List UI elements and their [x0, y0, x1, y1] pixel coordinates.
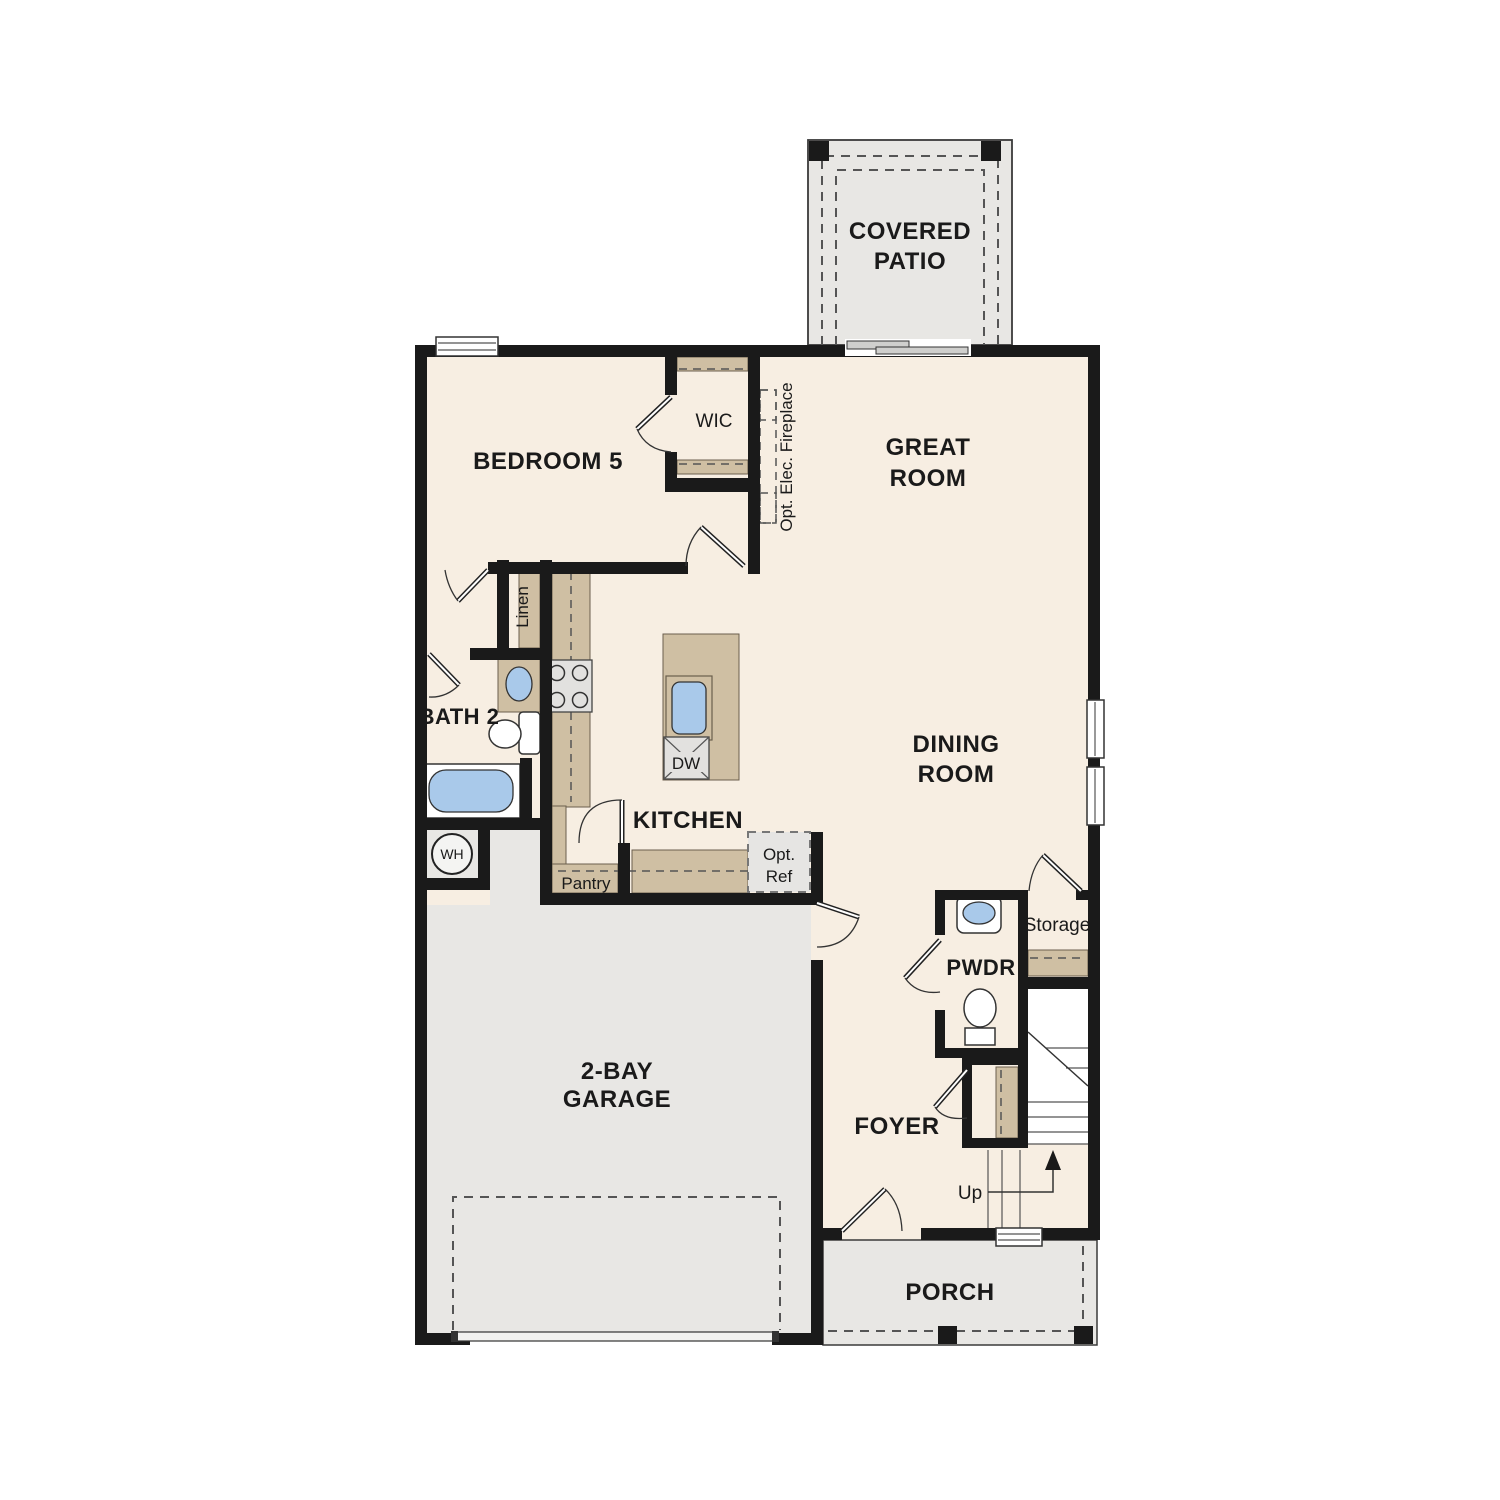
covered-patio-label-line2: PATIO	[874, 248, 946, 275]
patio-sliding-door	[845, 339, 971, 356]
kitchen-label: KITCHEN	[633, 807, 743, 834]
coat-closet-shelf	[996, 1067, 1018, 1138]
floor-plan-drawing: COVERED PATIO Up WIC Linen	[0, 0, 1500, 1500]
water-heater: WH	[432, 834, 472, 874]
island-sink	[672, 682, 706, 734]
floor-plan-page: COVERED PATIO Up WIC Linen	[0, 0, 1500, 1500]
bath2-toilet-tank	[519, 712, 540, 754]
garage-floor	[427, 905, 811, 1333]
storage-shelf	[1028, 950, 1088, 976]
dishwasher-label: DW	[672, 754, 700, 773]
garage-floor-strip	[490, 827, 540, 907]
dining-room-label-line2: ROOM	[918, 761, 995, 788]
garage-label-line2: GARAGE	[563, 1086, 671, 1113]
water-heater-label: WH	[440, 846, 463, 862]
fireplace-label: Opt. Elec. Fireplace	[777, 382, 796, 531]
patio-post	[809, 141, 829, 161]
bath2-sink	[506, 667, 532, 701]
garage-door	[455, 1332, 775, 1341]
foyer-window	[996, 1228, 1042, 1246]
pwdr-toilet-bowl	[964, 989, 996, 1027]
opt-ref-label-line1: Opt.	[763, 845, 795, 864]
pwdr-sink	[963, 902, 995, 924]
porch-label: PORCH	[905, 1279, 994, 1306]
garage-label-line1: 2-BAY	[581, 1058, 653, 1085]
wic-label: WIC	[696, 411, 733, 432]
bath2-tub-basin	[429, 770, 513, 812]
foyer-label: FOYER	[854, 1113, 939, 1140]
covered-patio-label-line1: COVERED	[849, 218, 971, 245]
porch-post	[1074, 1326, 1093, 1344]
bedroom5-window	[436, 337, 498, 356]
pwdr-label: PWDR	[946, 955, 1015, 980]
pwdr-toilet-base	[965, 1028, 995, 1045]
wic-shelf	[677, 460, 748, 474]
stairs-up-label: Up	[958, 1183, 982, 1204]
great-room-label-line1: GREAT	[886, 434, 971, 461]
covered-patio: COVERED PATIO	[808, 140, 1012, 345]
pantry-label: Pantry	[561, 874, 611, 893]
foyer-closet	[996, 1067, 1018, 1138]
storage-label: Storage	[1024, 915, 1091, 936]
great-room-label-line2: ROOM	[890, 465, 967, 492]
porch-post	[938, 1326, 957, 1344]
opt-ref-label-line2: Ref	[766, 867, 793, 886]
bath2-label: BATH 2	[419, 704, 500, 729]
bedroom5-label: BEDROOM 5	[473, 448, 623, 475]
linen-label: Linen	[513, 586, 532, 628]
patio-post	[981, 141, 1001, 161]
dining-room-label-line1: DINING	[913, 731, 1000, 758]
